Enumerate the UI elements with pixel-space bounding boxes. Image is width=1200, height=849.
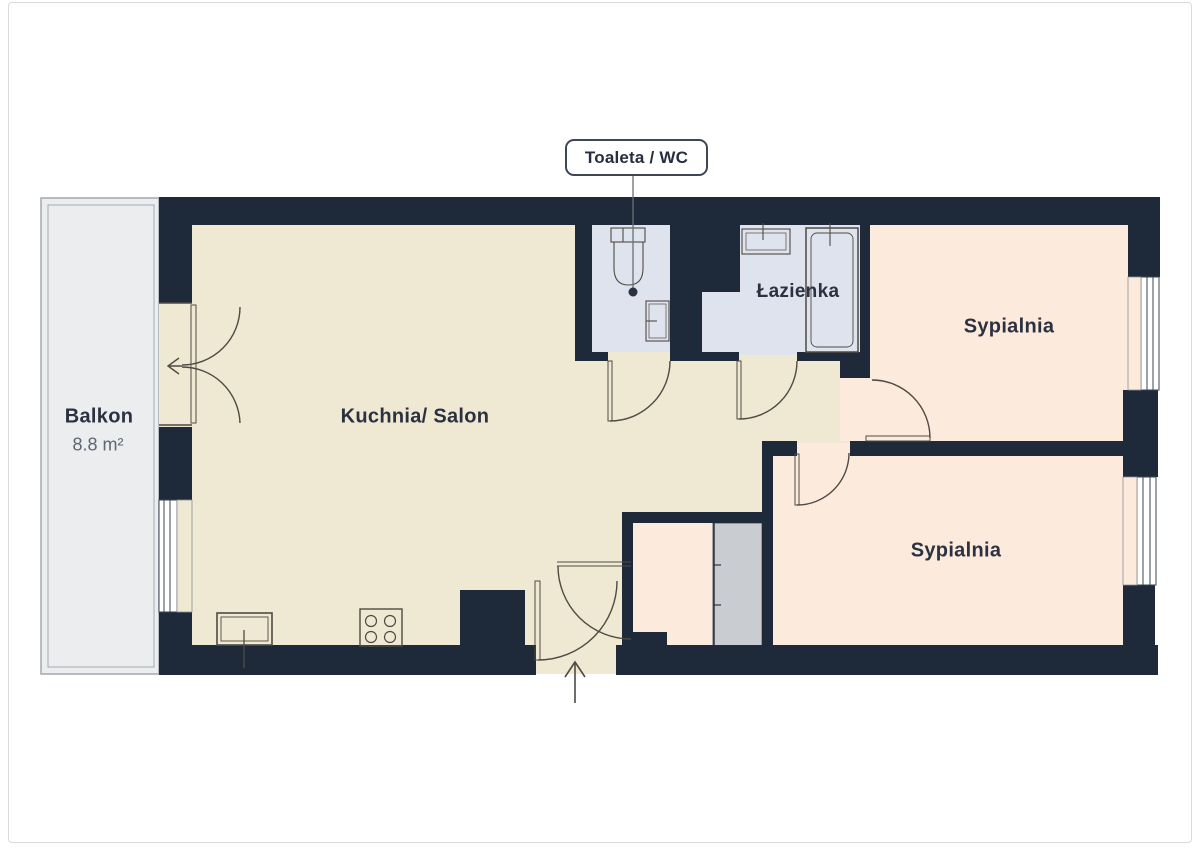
bedroom-bottom-window <box>1123 477 1156 585</box>
bedroom-bottom-label: Sypialnia <box>911 540 1002 563</box>
bedroom-top-window <box>1128 277 1159 390</box>
wardrobe <box>713 523 762 646</box>
floorplan-drawing <box>0 0 1200 849</box>
toaleta-wc-callout: Toaleta / WC <box>565 139 708 176</box>
kitchen-living-label: Kuchnia/ Salon <box>341 406 490 429</box>
balcony-area-label: 8.8 m² <box>72 435 123 456</box>
balcony-label: Balkon <box>65 406 133 429</box>
floorplan: Toaleta / WC Balkon 8.8 m² Kuchnia/ Salo… <box>0 0 1200 849</box>
balcony-window-left <box>159 500 192 612</box>
bathroom-label: Łazienka <box>757 281 840 303</box>
bedroom-top-label: Sypialnia <box>964 316 1055 339</box>
